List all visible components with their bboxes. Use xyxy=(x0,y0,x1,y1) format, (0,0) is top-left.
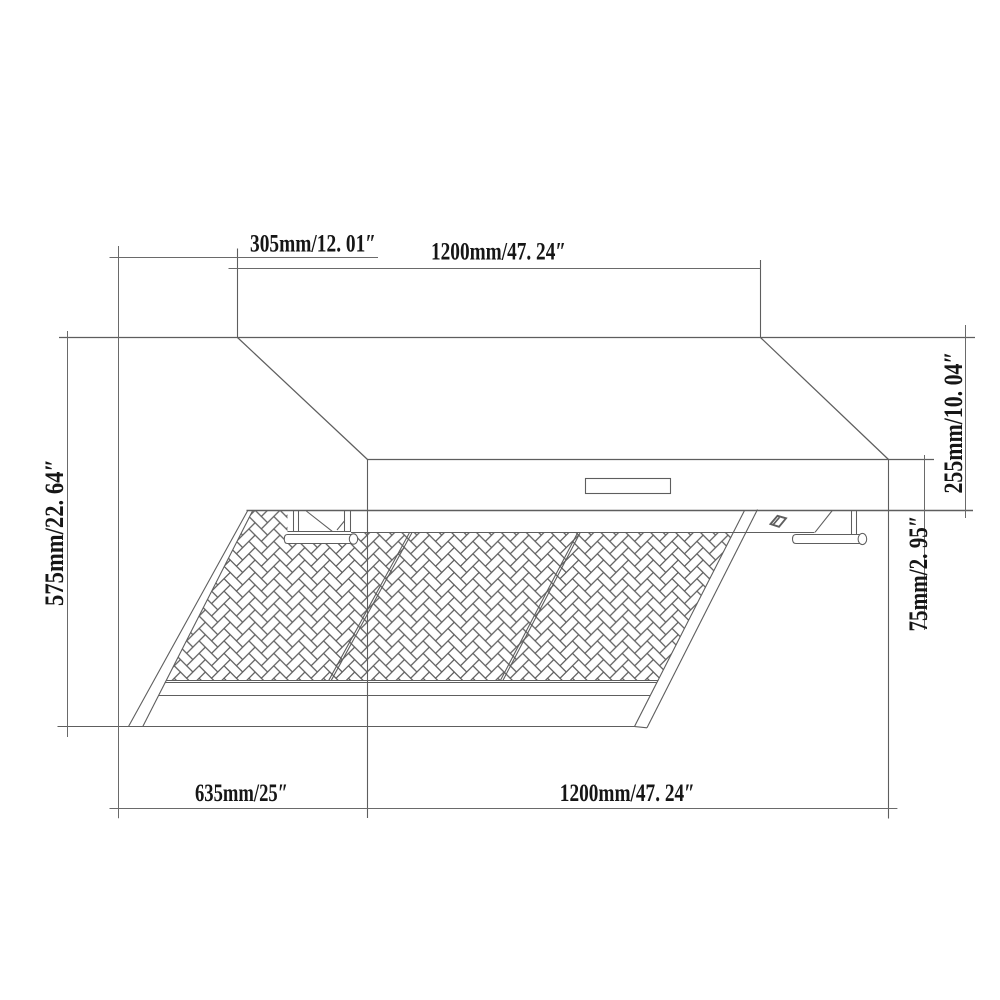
svg-text:575mm/22. 64″: 575mm/22. 64″ xyxy=(40,459,69,606)
svg-text:1200mm/47. 24″: 1200mm/47. 24″ xyxy=(431,239,566,266)
svg-text:1200mm/47. 24″: 1200mm/47. 24″ xyxy=(560,780,695,807)
svg-text:635mm/25″: 635mm/25″ xyxy=(195,780,288,807)
svg-text:305mm/12. 01″: 305mm/12. 01″ xyxy=(250,231,376,258)
svg-text:255mm/10. 04″: 255mm/10. 04″ xyxy=(939,352,968,494)
svg-text:75mm/2. 95″: 75mm/2. 95″ xyxy=(904,516,933,632)
